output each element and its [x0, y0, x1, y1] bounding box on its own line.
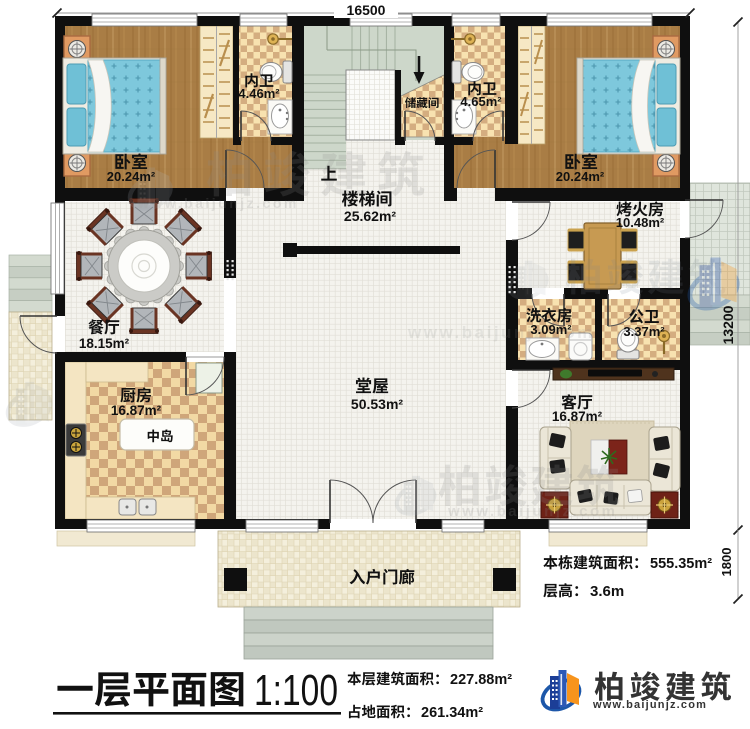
svg-text:3.37m²: 3.37m²: [623, 324, 665, 339]
svg-text:25.62m²: 25.62m²: [344, 208, 396, 224]
svg-text:www.baijunjz.com: www.baijunjz.com: [137, 195, 299, 211]
svg-text:20.24m²: 20.24m²: [107, 169, 156, 184]
svg-text:16.87m²: 16.87m²: [552, 409, 603, 424]
svg-text:18.15m²: 18.15m²: [79, 336, 130, 351]
svg-text:20.24m²: 20.24m²: [556, 169, 605, 184]
svg-text:1800: 1800: [719, 548, 734, 577]
svg-text:13200: 13200: [720, 305, 736, 344]
svg-text:50.53m²: 50.53m²: [351, 396, 403, 412]
svg-text:3.09m²: 3.09m²: [530, 322, 572, 337]
svg-text:4.46m²: 4.46m²: [238, 86, 280, 101]
svg-text:16.87m²: 16.87m²: [111, 403, 162, 418]
svg-text:16500: 16500: [347, 2, 386, 18]
svg-text:1:100: 1:100: [254, 666, 338, 715]
svg-text:227.88m²: 227.88m²: [450, 672, 512, 688]
svg-text:www.baijunjz.com: www.baijunjz.com: [592, 699, 707, 711]
svg-text:4.65m²: 4.65m²: [460, 94, 502, 109]
svg-text:3.6m: 3.6m: [590, 583, 624, 600]
svg-text:555.35m²: 555.35m²: [650, 556, 712, 572]
svg-text:261.34m²: 261.34m²: [421, 705, 483, 721]
svg-text:10.48m²: 10.48m²: [616, 215, 665, 230]
svg-text:www.baijunjz.com: www.baijunjz.com: [447, 503, 617, 520]
